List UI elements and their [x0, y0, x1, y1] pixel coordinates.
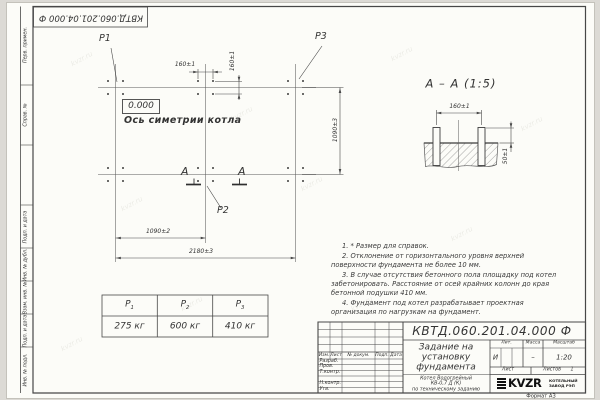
- margin-label-sprav-no: Справ. №: [24, 103, 29, 126]
- kvzr-logo-emblem-icon: [497, 378, 506, 389]
- p-subscript: 1: [131, 305, 134, 311]
- loads-table-header-p2: P2: [181, 300, 190, 311]
- section-letter-left: А: [181, 166, 189, 177]
- factory-caption-line2: ЗАВОД РЭП: [549, 384, 578, 389]
- p-subscript: 2: [186, 305, 189, 311]
- loads-table-header-p3: P3: [236, 300, 245, 311]
- dim-1090-bottom: 1090±2: [146, 229, 170, 235]
- note-2: 2. Отклонение от горизонтального уровня …: [331, 252, 559, 270]
- rev-header-izm: Изм.: [319, 353, 330, 358]
- document-number: КВТД.060.201.04.000 Ф: [412, 325, 571, 337]
- p-subscript: 3: [241, 305, 244, 311]
- role-utv: Утв.: [320, 388, 330, 393]
- dim-2180: 2180±3: [189, 249, 213, 255]
- margin-label-podp-data-2: Подп. и дата: [24, 314, 29, 347]
- technical-notes: 1. * Размер для справок. 2. Отклонение о…: [331, 242, 559, 318]
- format-label: Формат А3: [526, 394, 556, 399]
- load-label-p3: P3: [315, 32, 327, 42]
- dim-1090-right: 1090±3: [333, 118, 339, 142]
- role-t-kontr: Т.контр.: [320, 371, 341, 376]
- level-mark: 0.000: [122, 99, 160, 114]
- rev-header-list: Лист: [330, 353, 341, 358]
- anchor-bolt: [433, 128, 440, 166]
- dim-160-vertical: 160±1: [230, 51, 236, 71]
- sheets-label: Листов: [543, 368, 561, 373]
- factory-caption: КОТЕЛЬНЫЙ ЗАВОД РЭП: [549, 379, 578, 388]
- section-title: А – А (1:5): [426, 78, 497, 90]
- section-cut-marks: [186, 179, 247, 185]
- boiler-symmetry-axis-label: Ось симетрии котла: [124, 116, 242, 126]
- kvzr-logo: KVZR: [497, 376, 541, 390]
- margin-label-inv-dubl: Инв. № дубл.: [24, 248, 29, 281]
- scale-label: Масштаб: [553, 342, 575, 347]
- margin-label-podp-data-1: Подп. и дата: [24, 210, 29, 243]
- mass-label: Масса: [526, 342, 541, 347]
- mass-value: –: [531, 354, 535, 361]
- dim-160-horizontal: 160±1: [175, 62, 195, 68]
- lit-label: Лит.: [501, 342, 512, 347]
- doc-title-line3: фундамента: [416, 363, 476, 372]
- rev-header-sign: Подп.: [375, 353, 389, 358]
- section-dim-50: 50±1: [503, 148, 509, 164]
- loads-table-value-p2: 600 кг: [170, 322, 200, 331]
- section-letter-right: А: [238, 166, 246, 177]
- corner-stamp-number: КВТД.060.201.04.000 Ф: [38, 13, 142, 22]
- note-4: 4. Фундамент под котел разрабатывает про…: [331, 299, 559, 317]
- doc-subtitle-line3: по техническому заданию: [412, 387, 480, 392]
- sheet-label: Лист: [502, 368, 514, 373]
- kvzr-logo-text: KVZR: [508, 376, 541, 390]
- margin-label-perv-primen: Перв. примен.: [24, 27, 29, 63]
- load-label-p1: P1: [99, 34, 111, 44]
- rev-header-date: Дата: [390, 353, 402, 358]
- rev-header-doc: № докум.: [347, 353, 369, 358]
- scale-value: 1:20: [556, 354, 572, 361]
- note-1: 1. * Размер для справок.: [331, 242, 559, 251]
- sheets-value: 1: [570, 368, 573, 373]
- loads-table-value-p3: 410 кг: [225, 322, 255, 331]
- note-3: 3. В случае отсутствия бетонного пола пл…: [331, 271, 559, 298]
- margin-label-vzam-inv: Взам. инв. №: [24, 281, 29, 314]
- drawing-sheet-page: { "colors": {"line":"#474747","text":"#3…: [0, 0, 600, 400]
- plan-centerlines: [98, 64, 316, 262]
- load-label-p2: P2: [217, 206, 229, 216]
- plan-dimension-lines: [111, 46, 344, 258]
- lit-value: И: [493, 354, 498, 361]
- section-dim-160: 160±1: [449, 104, 469, 110]
- loads-table-header-p1: P1: [125, 300, 134, 311]
- doc-title-line1: Задание на: [419, 343, 474, 352]
- doc-title-line2: установку: [422, 353, 471, 362]
- loads-table-value-p1: 275 кг: [114, 322, 144, 331]
- margin-label-inv-podl: Инв. № подл.: [24, 353, 29, 386]
- anchor-bolt: [478, 128, 485, 166]
- section-view: [424, 110, 514, 171]
